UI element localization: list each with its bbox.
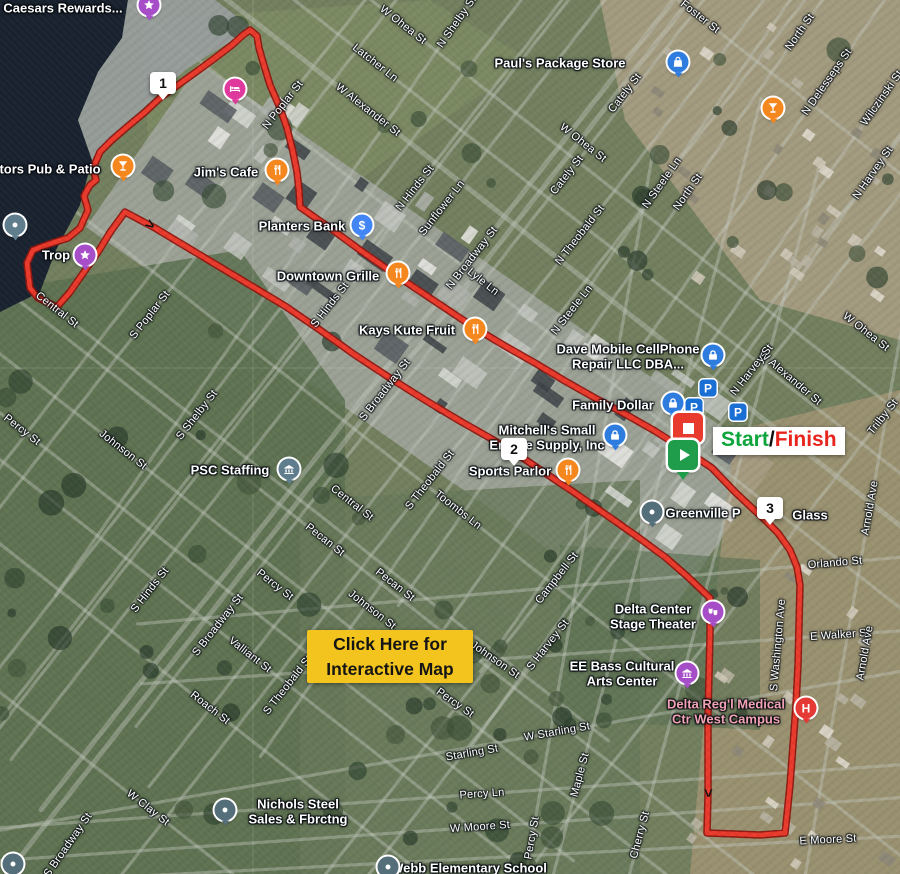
cta-line2: Interactive Map — [326, 657, 453, 681]
hospital-icon[interactable]: H — [796, 698, 817, 719]
dot-icon[interactable] — [378, 857, 399, 874]
poi-label: Greenville P — [665, 507, 740, 522]
poi-label: Jim's Cafe — [194, 166, 259, 181]
poi-label: Caesars Rewards... — [3, 2, 122, 17]
map-canvas[interactable]: W Ohea StN Shelby StLatcher LnW Alexande… — [0, 0, 900, 874]
poi-label: Kays Kute Fruit — [359, 324, 455, 339]
poi-label: Paul's Package Store — [495, 57, 626, 72]
poi-label: Dave Mobile CellPhoneRepair LLC DBA... — [556, 342, 699, 371]
restaurant-icon[interactable] — [388, 263, 409, 284]
mile-marker-1[interactable]: 1 — [150, 72, 176, 94]
poi-label: tors Pub & Patio — [0, 163, 101, 178]
poi-label: Trop — [42, 249, 70, 264]
parking-icon[interactable]: P — [700, 380, 717, 397]
lock-icon[interactable] — [605, 425, 626, 446]
start-text: Start — [721, 428, 769, 451]
start-finish-label: Start/Finish — [713, 427, 845, 455]
star-icon[interactable] — [75, 245, 96, 266]
parking-icon[interactable]: P — [730, 404, 747, 421]
restaurant-icon[interactable] — [267, 160, 288, 181]
cocktail-icon[interactable] — [763, 98, 784, 119]
dot-icon[interactable] — [5, 215, 26, 236]
restaurant-icon[interactable] — [465, 319, 486, 340]
route-direction-chevron: > — [700, 789, 717, 798]
poi-label: Downtown Grille — [277, 270, 380, 285]
poi-label: PSC Staffing — [191, 464, 270, 479]
museum-icon[interactable] — [677, 663, 698, 684]
poi-label: Webb Elementary School — [391, 862, 547, 874]
building-icon[interactable] — [279, 459, 300, 480]
dot-icon[interactable] — [215, 800, 236, 821]
poi-label: EE Bass CulturalArts Center — [570, 659, 675, 688]
dollar-icon[interactable]: $ — [352, 215, 373, 236]
poi-label: Glass — [792, 509, 827, 524]
finish-pin[interactable] — [673, 413, 703, 443]
poi-label: Family Dollar — [572, 399, 654, 414]
interactive-map-button[interactable]: Click Here for Interactive Map — [307, 630, 473, 683]
poi-label: Delta Reg'l MedicalCtr West Campus — [667, 697, 785, 726]
bed-icon[interactable] — [225, 79, 246, 100]
bag-icon[interactable] — [668, 52, 689, 73]
poi-label: Planters Bank — [259, 220, 346, 235]
mile-marker-3[interactable]: 3 — [757, 497, 783, 519]
lock-icon[interactable] — [663, 393, 684, 414]
cocktail-icon[interactable] — [113, 156, 134, 177]
poi-label: Delta CenterStage Theater — [610, 602, 696, 631]
cta-line1: Click Here for — [333, 632, 447, 656]
dot-icon[interactable] — [642, 502, 663, 523]
theater-icon[interactable] — [703, 602, 724, 623]
mile-marker-2[interactable]: 2 — [501, 438, 527, 460]
start-pin[interactable] — [668, 440, 698, 470]
restaurant-icon[interactable] — [558, 460, 579, 481]
lock-icon[interactable] — [703, 345, 724, 366]
dot-icon[interactable] — [3, 854, 24, 874]
finish-text: Finish — [775, 428, 837, 451]
poi-label: Nichols SteelSales & Fbrctng — [249, 797, 348, 826]
